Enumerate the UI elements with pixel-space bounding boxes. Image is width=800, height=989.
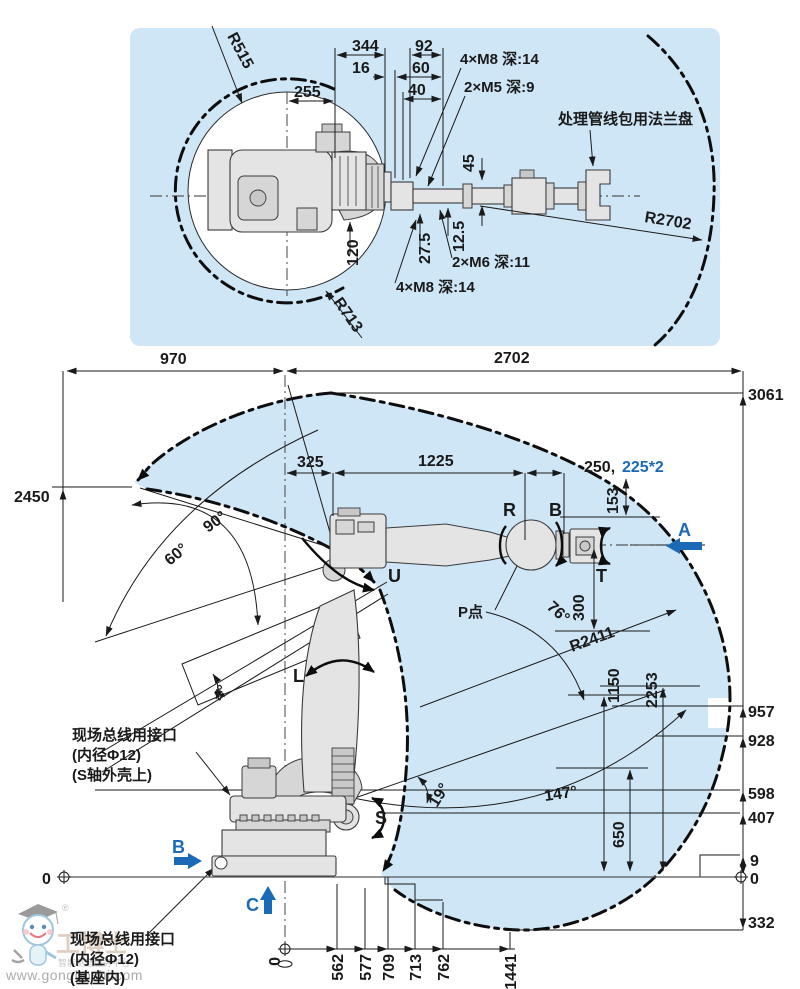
zero-left-label: 0 bbox=[42, 871, 51, 888]
dim-60: 60 bbox=[412, 60, 430, 77]
dim-1225: 1225 bbox=[418, 453, 454, 470]
axis-l-label: L bbox=[293, 666, 304, 686]
robot-dimension-page: 344 92 16 60 40 255 R515 4×M8 深:14 2×M5 … bbox=[0, 0, 800, 989]
dim-713: 713 bbox=[408, 954, 425, 981]
dim-928: 928 bbox=[748, 733, 775, 750]
zero-marker-right bbox=[734, 870, 748, 884]
fieldbus-s-line3: (S轴外壳上) bbox=[72, 766, 152, 784]
fieldbus-label-s-axis: 现场总线用接口 (内径Φ12) (S轴外壳上) bbox=[72, 726, 177, 784]
axis-s-label: S bbox=[375, 808, 387, 828]
flange-note: 处理管线包用法兰盘 bbox=[557, 110, 693, 128]
dim-300: 300 bbox=[571, 594, 588, 621]
dim-12-5: 12.5 bbox=[451, 221, 468, 252]
dim-2702: 2702 bbox=[494, 350, 530, 367]
dim-2450: 2450 bbox=[14, 489, 50, 506]
dim-3061: 3061 bbox=[748, 387, 784, 404]
fieldbus-base-line3: (基座内) bbox=[70, 969, 125, 987]
dim-332: 332 bbox=[748, 915, 775, 932]
p-point-label: P点 bbox=[458, 604, 483, 621]
dim-762: 762 bbox=[436, 954, 453, 981]
bolt-note-m8-bottom: 4×M8 深:14 bbox=[396, 278, 475, 296]
top-view: 344 92 16 60 40 255 R515 4×M8 深:14 2×M5 … bbox=[130, 26, 720, 346]
robot-dimension-drawing: 344 92 16 60 40 255 R515 4×M8 深:14 2×M5 … bbox=[0, 0, 800, 989]
bolt-note-m8-top: 4×M8 深:14 bbox=[460, 50, 539, 68]
dim-16: 16 bbox=[352, 60, 370, 77]
dim-407: 407 bbox=[748, 810, 775, 827]
view-c-label: C bbox=[246, 895, 259, 915]
dim-27-5: 27.5 bbox=[417, 233, 434, 264]
view-b-label: B bbox=[172, 837, 185, 857]
dim-344: 344 bbox=[352, 38, 379, 55]
dim-255: 255 bbox=[294, 84, 321, 101]
fieldbus-s-line1: 现场总线用接口 bbox=[72, 726, 177, 744]
view-a-label: A bbox=[678, 520, 691, 540]
dim-1150: 1150 bbox=[606, 668, 623, 703]
dim-40: 40 bbox=[408, 82, 426, 99]
side-view: 970 2702 3061 2450 325 1225 250, 225*2 1… bbox=[14, 350, 784, 989]
dim-957: 957 bbox=[748, 704, 775, 721]
view-c-arrow bbox=[260, 886, 276, 914]
dim-598: 598 bbox=[748, 786, 775, 803]
dim-92: 92 bbox=[415, 38, 433, 55]
dim-562: 562 bbox=[330, 954, 347, 981]
fieldbus-base-line1: 现场总线用接口 bbox=[70, 930, 175, 948]
zero-bottom-label: 0 bbox=[267, 957, 284, 966]
zero-right-label: 0 bbox=[750, 871, 759, 888]
dim-709: 709 bbox=[381, 954, 398, 981]
axis-u-label: U bbox=[388, 566, 401, 586]
watermark-registered-mark: ® bbox=[62, 903, 69, 913]
dim-45: 45 bbox=[461, 154, 478, 172]
dim-970: 970 bbox=[160, 351, 187, 368]
zero-marker-left bbox=[57, 870, 71, 884]
mascot-logo bbox=[12, 904, 58, 965]
angle-60: 60° bbox=[162, 540, 191, 569]
dim-2253: 2253 bbox=[644, 672, 661, 708]
axis-t-label: T bbox=[596, 566, 607, 586]
dim-577: 577 bbox=[358, 954, 375, 981]
axis-b-label: B bbox=[549, 500, 562, 520]
dim-153: 153 bbox=[605, 487, 622, 514]
fieldbus-s-line2: (内径Φ12) bbox=[72, 746, 141, 764]
dim-9: 9 bbox=[750, 853, 759, 870]
dim-650: 650 bbox=[611, 821, 628, 848]
dim-225x2: 225*2 bbox=[622, 459, 664, 476]
bolt-note-m5: 2×M5 深:9 bbox=[464, 78, 534, 96]
dim-120: 120 bbox=[345, 239, 362, 266]
dim-1441: 1441 bbox=[503, 954, 520, 989]
fieldbus-label-base: 现场总线用接口 (内径Φ12) (基座内) bbox=[70, 930, 175, 987]
axis-r-label: R bbox=[503, 500, 516, 520]
dim-250: 250, bbox=[584, 459, 615, 476]
bolt-note-m6: 2×M6 深:11 bbox=[452, 253, 530, 271]
fieldbus-base-line2: (内径Φ12) bbox=[70, 950, 139, 968]
dim-325: 325 bbox=[297, 454, 324, 471]
